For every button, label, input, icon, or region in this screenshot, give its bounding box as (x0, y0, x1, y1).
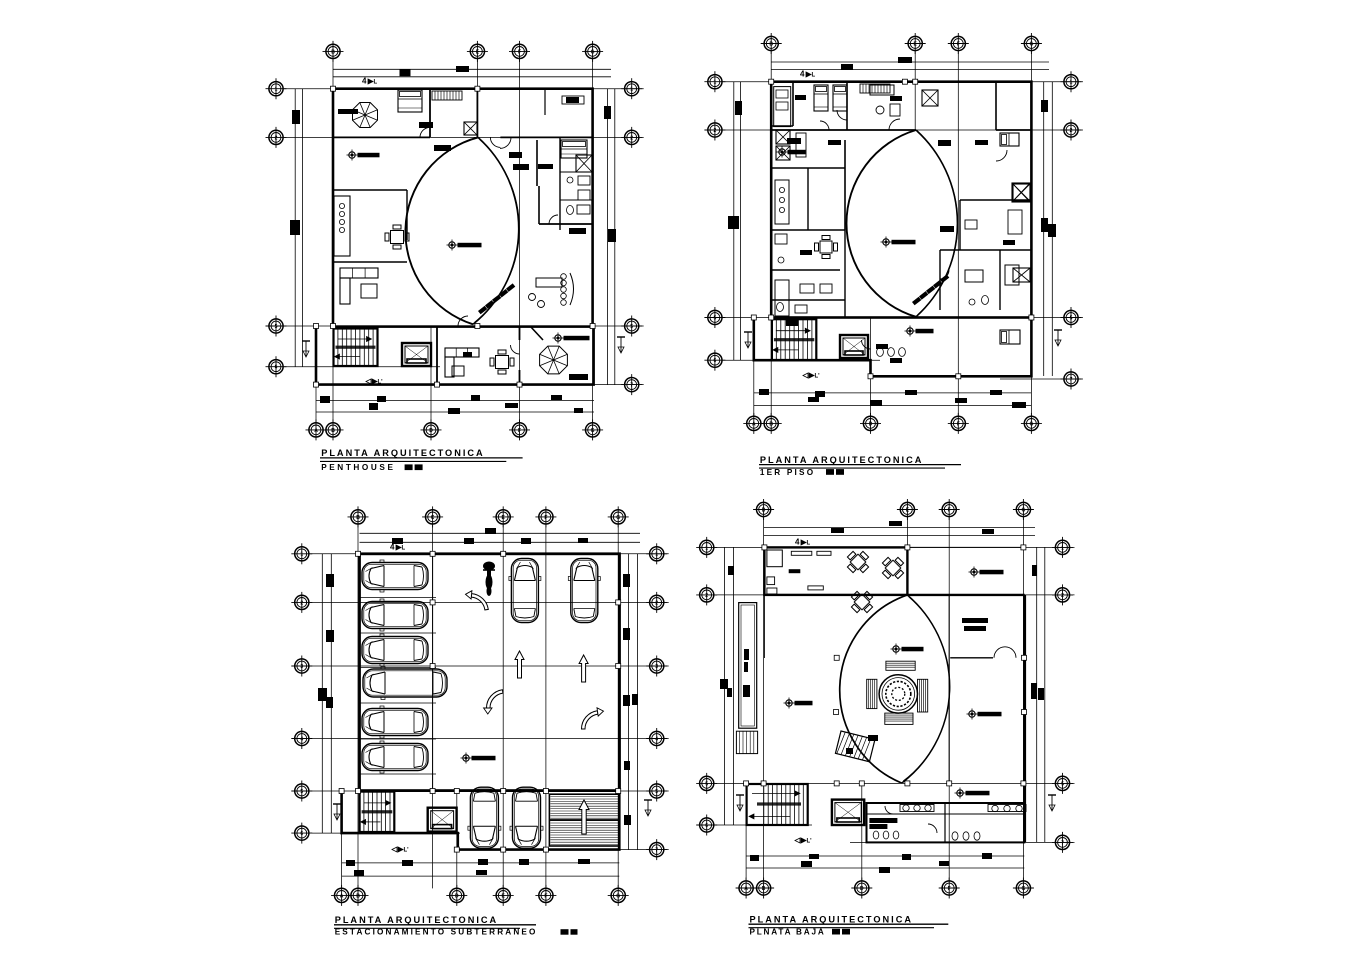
svg-text:5: 5 (300, 789, 303, 795)
svg-text:5: 5 (630, 324, 633, 330)
svg-text:6: 6 (705, 823, 708, 829)
svg-text:F: F (957, 41, 960, 47)
svg-text:G: G (591, 49, 595, 55)
svg-text:1: 1 (630, 87, 633, 93)
svg-text:2: 2 (705, 593, 708, 599)
svg-text:4: 4 (655, 736, 658, 742)
svg-text:B: B (762, 507, 766, 513)
svg-text:B: B (769, 41, 773, 47)
svg-text:C: C (431, 515, 435, 521)
svg-text:B: B (356, 893, 360, 899)
svg-text:G: G (616, 515, 620, 521)
svg-text:F: F (518, 428, 521, 434)
svg-text:D: D (429, 428, 433, 434)
svg-text:1: 1 (1061, 545, 1064, 551)
svg-text:D: D (860, 886, 864, 892)
svg-text:7: 7 (1061, 840, 1064, 846)
svg-text:L: L (402, 546, 406, 552)
svg-text:4: 4 (300, 736, 303, 742)
svg-text:6: 6 (275, 365, 278, 371)
svg-text:B: B (356, 515, 360, 521)
svg-text:PLANTA ARQUITECTONICA: PLANTA ARQUITECTONICA (760, 455, 923, 465)
svg-text:F: F (948, 886, 951, 892)
svg-text:A: A (340, 893, 344, 899)
svg-text:D: D (455, 893, 459, 899)
svg-text:5: 5 (655, 789, 658, 795)
svg-text:2: 2 (714, 128, 717, 134)
svg-text:L: L (812, 73, 816, 79)
svg-text:2: 2 (1070, 128, 1073, 134)
svg-text:G: G (1021, 886, 1025, 892)
svg-text:PLANTA ARQUITECTONICA: PLANTA ARQUITECTONICA (335, 915, 498, 925)
svg-text:PLANTA ARQUITECTONICA: PLANTA ARQUITECTONICA (750, 915, 913, 925)
svg-text:2: 2 (655, 600, 658, 606)
svg-text:1: 1 (705, 545, 708, 551)
svg-text:L': L' (378, 380, 384, 386)
svg-text:L: L (807, 541, 811, 547)
svg-text:4: 4 (795, 538, 800, 547)
svg-text:G: G (616, 893, 620, 899)
svg-text:6: 6 (714, 358, 717, 364)
svg-text:G: G (1021, 507, 1025, 513)
svg-text:1: 1 (714, 80, 717, 86)
svg-text:2: 2 (630, 135, 633, 141)
svg-text:B: B (762, 886, 766, 892)
svg-text:2: 2 (1061, 593, 1064, 599)
svg-text:G: G (1029, 41, 1033, 47)
svg-text:A: A (752, 421, 756, 427)
svg-text:7: 7 (655, 848, 658, 854)
svg-text:A: A (314, 428, 318, 434)
svg-text:F: F (957, 421, 960, 427)
svg-text:G: G (1029, 421, 1033, 427)
svg-text:7: 7 (630, 383, 633, 389)
svg-text:5: 5 (1061, 781, 1064, 787)
svg-text:L: L (374, 80, 378, 86)
svg-text:L': L' (807, 839, 813, 845)
svg-text:5: 5 (1070, 315, 1073, 321)
svg-text:ESTACIONAMIENTO SUBTERRANEO: ESTACIONAMIENTO SUBTERRANEO (335, 928, 538, 937)
svg-text:1ER PISO: 1ER PISO (760, 468, 815, 477)
svg-text:D: D (869, 421, 873, 427)
svg-text:4: 4 (362, 77, 367, 86)
svg-text:7: 7 (1070, 377, 1073, 383)
svg-text:F: F (518, 49, 521, 55)
svg-text:5: 5 (714, 315, 717, 321)
svg-text:3: 3 (300, 664, 303, 670)
svg-text:4: 4 (800, 70, 805, 79)
svg-text:6: 6 (300, 831, 303, 837)
svg-text:1: 1 (275, 87, 278, 93)
svg-text:B: B (331, 49, 335, 55)
svg-text:F: F (544, 515, 547, 521)
svg-text:2: 2 (300, 600, 303, 606)
svg-text:PLNATA BAJA: PLNATA BAJA (750, 928, 826, 937)
svg-text:1: 1 (1070, 80, 1073, 86)
svg-text:1: 1 (655, 552, 658, 558)
svg-text:L': L' (815, 374, 821, 380)
svg-text:B: B (331, 428, 335, 434)
svg-text:B: B (769, 421, 773, 427)
svg-text:PENTHOUSE: PENTHOUSE (321, 463, 395, 472)
svg-text:5: 5 (275, 324, 278, 330)
svg-text:3: 3 (655, 664, 658, 670)
svg-text:G: G (591, 428, 595, 434)
svg-text:PLANTA ARQUITECTONICA: PLANTA ARQUITECTONICA (321, 448, 484, 458)
svg-text:L': L' (404, 848, 410, 854)
svg-text:F: F (544, 893, 547, 899)
svg-text:2: 2 (275, 135, 278, 141)
svg-text:5: 5 (705, 781, 708, 787)
svg-text:A: A (744, 886, 748, 892)
svg-text:F: F (948, 507, 951, 513)
svg-text:1: 1 (300, 552, 303, 558)
